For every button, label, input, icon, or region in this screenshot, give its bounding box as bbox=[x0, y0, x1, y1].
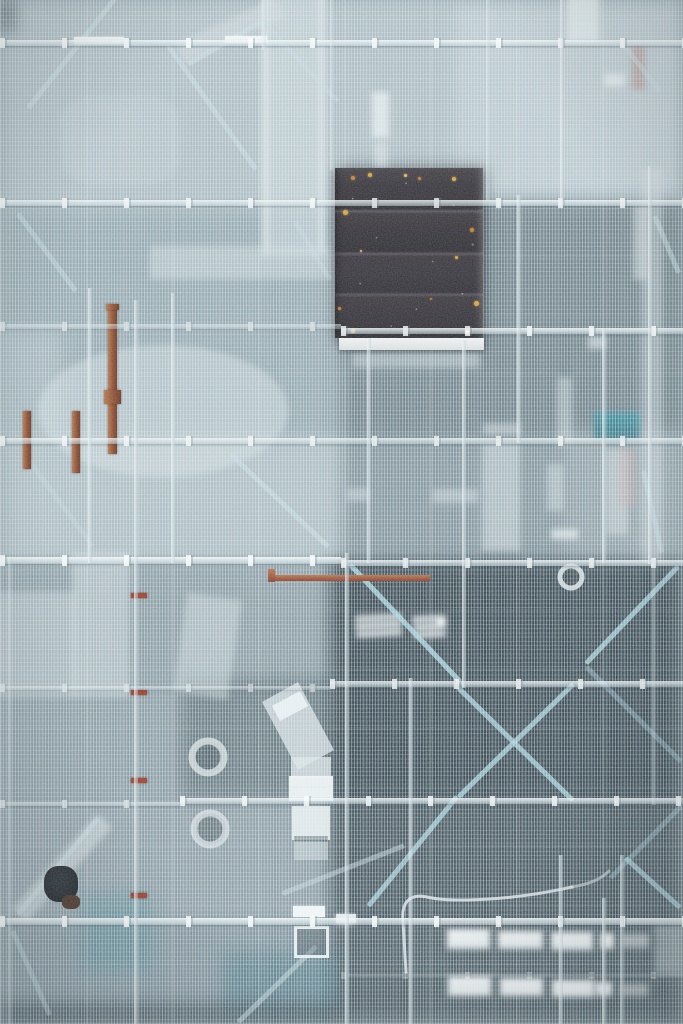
zone-patch bbox=[0, 800, 330, 924]
scaffold-pole bbox=[134, 300, 138, 1024]
zone-patch bbox=[0, 208, 341, 443]
white-block-marking bbox=[448, 976, 491, 996]
zone-patch bbox=[330, 560, 683, 802]
diagonal-brace bbox=[366, 795, 459, 908]
foreground-objects-layer bbox=[0, 0, 683, 1024]
duct-box-faint bbox=[294, 842, 328, 860]
white-bar-marking bbox=[293, 906, 325, 917]
pale-panel bbox=[482, 443, 520, 551]
round-duct-ring bbox=[192, 741, 224, 773]
white-bar-marking bbox=[225, 36, 267, 43]
white-block-marking bbox=[447, 929, 490, 949]
lichen-dot bbox=[351, 176, 355, 180]
scaffold-pole bbox=[88, 288, 92, 563]
right-column-duct bbox=[641, 168, 663, 563]
zone-patch bbox=[180, 678, 330, 800]
white-block-marking bbox=[500, 978, 543, 996]
pale-tag bbox=[347, 488, 369, 501]
white-block-marking bbox=[552, 980, 594, 997]
diagonal-brace bbox=[16, 212, 78, 293]
scaffold-rail bbox=[0, 802, 180, 806]
white-stripe-marking bbox=[437, 617, 446, 625]
copper-standpipe-tall bbox=[108, 307, 117, 454]
zone-patch bbox=[0, 0, 14, 32]
under-mesh-shapes-layer bbox=[0, 0, 683, 1024]
zone-patch bbox=[341, 165, 486, 350]
diagonal-brace bbox=[24, 455, 95, 548]
lichen-dot bbox=[404, 174, 407, 177]
thin-pipe bbox=[403, 887, 572, 972]
scaffold-pole bbox=[648, 166, 652, 564]
slanted-curtain bbox=[173, 593, 241, 700]
vertical-duct bbox=[264, 0, 326, 256]
lichen-dot bbox=[465, 330, 469, 334]
white-stripe-marking bbox=[355, 622, 402, 629]
vertical-duct-edge bbox=[319, 0, 325, 256]
scaffold-pole bbox=[262, 0, 266, 50]
diagonal-brace bbox=[16, 817, 100, 916]
horizontal-duct-arm bbox=[150, 246, 330, 279]
scaffold-rail bbox=[180, 798, 683, 804]
white-stripe-marking bbox=[356, 630, 402, 637]
diagonal-brace bbox=[166, 44, 258, 171]
zone-patch bbox=[0, 560, 330, 802]
white-stripe-marking bbox=[414, 631, 446, 638]
top-white-duct bbox=[567, 0, 599, 42]
copper-run bbox=[270, 575, 430, 581]
diagonal-braces-layer bbox=[0, 0, 683, 1024]
lichen-dot bbox=[368, 173, 372, 177]
scaffold-rail bbox=[341, 560, 683, 566]
scaffold-pole bbox=[8, 558, 12, 1024]
left-duct-band bbox=[72, 552, 130, 697]
diagonal-brace bbox=[293, 220, 332, 281]
pale-panel bbox=[557, 377, 572, 445]
dark-drum bbox=[44, 866, 78, 902]
diagonal-brace bbox=[10, 930, 52, 1016]
diagonal-brace bbox=[281, 843, 405, 896]
zone-patch bbox=[0, 438, 341, 566]
white-frame-marking bbox=[294, 926, 329, 958]
scaffold-pole bbox=[409, 678, 413, 1024]
scaffold-rail bbox=[0, 686, 330, 690]
lichen-dot bbox=[351, 329, 355, 333]
lichen-dot bbox=[418, 177, 421, 180]
zone-patch bbox=[341, 200, 683, 440]
lichen-dot bbox=[360, 250, 362, 252]
zone-patch bbox=[330, 922, 683, 1024]
scaffold-rail bbox=[0, 324, 341, 329]
photo-grain-overlay bbox=[0, 0, 683, 1024]
zone-patch bbox=[455, 0, 683, 208]
pale-panel bbox=[606, 449, 628, 535]
white-block-marking bbox=[498, 931, 543, 949]
diagonal-brace bbox=[624, 856, 682, 910]
diagonal-brace bbox=[348, 563, 462, 683]
vignette-overlay bbox=[0, 0, 683, 1024]
red-pipe-clamp bbox=[131, 893, 147, 898]
zone-patch bbox=[330, 800, 683, 924]
building-ducts-layer bbox=[0, 0, 683, 1024]
scaffold-rail bbox=[0, 40, 683, 46]
lichen-dot bbox=[474, 301, 479, 306]
zone-patch bbox=[560, 432, 683, 560]
dark-roof-panel bbox=[335, 168, 483, 338]
white-block-marking bbox=[620, 984, 648, 996]
diagonal-brace bbox=[259, 18, 340, 103]
background-zones-layer bbox=[0, 0, 683, 1024]
scaffold-pole bbox=[560, 0, 564, 205]
pale-panel bbox=[547, 464, 564, 511]
white-block-marking bbox=[596, 982, 612, 996]
scaffold-pole bbox=[345, 553, 349, 1024]
scaffold-pole bbox=[602, 328, 606, 563]
scaffold-rail bbox=[0, 200, 683, 206]
light-patch bbox=[60, 95, 180, 185]
copper-standpipe-short bbox=[23, 411, 31, 469]
round-duct-ring bbox=[194, 813, 226, 845]
roof-panel-base-strip bbox=[339, 338, 484, 350]
diagonal-brace bbox=[26, 0, 117, 110]
scaffolding-aerial-photo bbox=[0, 0, 683, 1024]
diagonal-brace bbox=[229, 452, 330, 549]
diagonal-brace bbox=[457, 682, 575, 799]
scaffold-pole bbox=[486, 0, 490, 200]
white-bar-marking bbox=[336, 914, 356, 923]
white-rect bbox=[604, 74, 625, 86]
white-rect bbox=[372, 92, 389, 138]
corner-marks bbox=[655, 925, 683, 975]
lichen-dot bbox=[452, 177, 456, 181]
white-stripe-marking bbox=[412, 615, 445, 622]
white-stripe-marking bbox=[413, 623, 446, 630]
pipe-cap bbox=[106, 304, 119, 310]
diagonal-brace bbox=[652, 215, 681, 274]
white-stripe-marking bbox=[355, 614, 402, 621]
lichen-dot bbox=[343, 210, 348, 215]
left-duct-blob bbox=[0, 592, 76, 697]
duct-box bbox=[291, 757, 331, 778]
diagonal-brace bbox=[187, 18, 266, 66]
lichen-dot bbox=[338, 307, 341, 310]
thin-pipe-end bbox=[572, 871, 609, 887]
duct-dome bbox=[38, 345, 288, 477]
pink-panel bbox=[619, 449, 636, 506]
vertical-duct-edge bbox=[262, 0, 268, 256]
scaffold-pole bbox=[330, 0, 334, 170]
white-block-marking bbox=[600, 933, 614, 949]
teal-patch bbox=[594, 412, 640, 439]
diagonal-brace bbox=[608, 804, 683, 880]
diagonal-brace bbox=[641, 470, 664, 553]
pale-tag bbox=[588, 336, 606, 349]
zone-patch bbox=[0, 1004, 340, 1024]
reddish-stripe bbox=[632, 46, 645, 90]
duct-box-bright bbox=[289, 776, 333, 801]
duct-diagonal-segment bbox=[262, 682, 334, 770]
duct-box-lower bbox=[292, 806, 330, 840]
pipe-coupling bbox=[104, 390, 121, 404]
zone-patch bbox=[0, 330, 62, 442]
diagonal-brace bbox=[456, 686, 574, 803]
scaffold-rail bbox=[341, 328, 683, 334]
right-small-panel bbox=[633, 205, 648, 280]
diagonal-brace bbox=[237, 944, 318, 1024]
pale-tag bbox=[483, 423, 521, 435]
zone-patch bbox=[222, 952, 340, 1024]
scaffold-pole bbox=[367, 338, 371, 563]
lichen-dot bbox=[430, 298, 432, 300]
scaffold-rails-poles-layer bbox=[0, 0, 683, 1024]
scaffold-rail bbox=[330, 681, 683, 687]
dark-drum-shadow bbox=[62, 895, 80, 909]
zone-patch bbox=[341, 438, 683, 562]
scaffold-pole bbox=[602, 898, 606, 1024]
scaffold-pole bbox=[652, 560, 656, 805]
zone-patch bbox=[80, 893, 152, 971]
scaffold-rail bbox=[341, 974, 683, 977]
diagonal-brace bbox=[584, 565, 680, 665]
scaffold-pole bbox=[517, 195, 521, 443]
pale-tag bbox=[551, 529, 578, 539]
white-rect bbox=[374, 142, 388, 169]
scaffold-pole bbox=[620, 855, 624, 1024]
copper-elbow bbox=[268, 569, 275, 582]
copper-standpipe-mid bbox=[72, 411, 80, 473]
lichen-dot bbox=[455, 256, 458, 259]
white-bar-marking bbox=[74, 37, 124, 44]
duct-diagonal-highlight bbox=[272, 691, 308, 721]
scalloped-band bbox=[352, 352, 480, 368]
red-pipe-clamp bbox=[131, 778, 147, 783]
diagonal-brace bbox=[623, 45, 662, 93]
scaffold-rail bbox=[0, 438, 683, 444]
scaffold-pole bbox=[462, 340, 466, 688]
round-duct-ring bbox=[560, 566, 582, 588]
pale-tag bbox=[432, 489, 478, 503]
white-block-marking bbox=[336, 916, 354, 925]
scaffolding-mesh-overlay bbox=[0, 0, 683, 1024]
scaffold-pole bbox=[171, 293, 175, 563]
diagonal-duct bbox=[176, 0, 285, 64]
white-block-marking bbox=[551, 932, 593, 950]
red-pipe-clamp bbox=[131, 690, 147, 695]
scaffold-pole bbox=[559, 855, 563, 1024]
diagonal-brace bbox=[584, 665, 683, 764]
zone-patch bbox=[0, 922, 330, 1024]
red-pipe-clamp bbox=[131, 593, 147, 598]
scaffold-rail bbox=[0, 918, 683, 925]
duct-box-shadow bbox=[294, 836, 328, 841]
zone-patch bbox=[0, 0, 683, 215]
scaffold-rail bbox=[0, 557, 341, 564]
white-block-marking bbox=[621, 934, 649, 948]
bottom-left-duct bbox=[12, 814, 113, 923]
lichen-dot bbox=[470, 228, 474, 232]
